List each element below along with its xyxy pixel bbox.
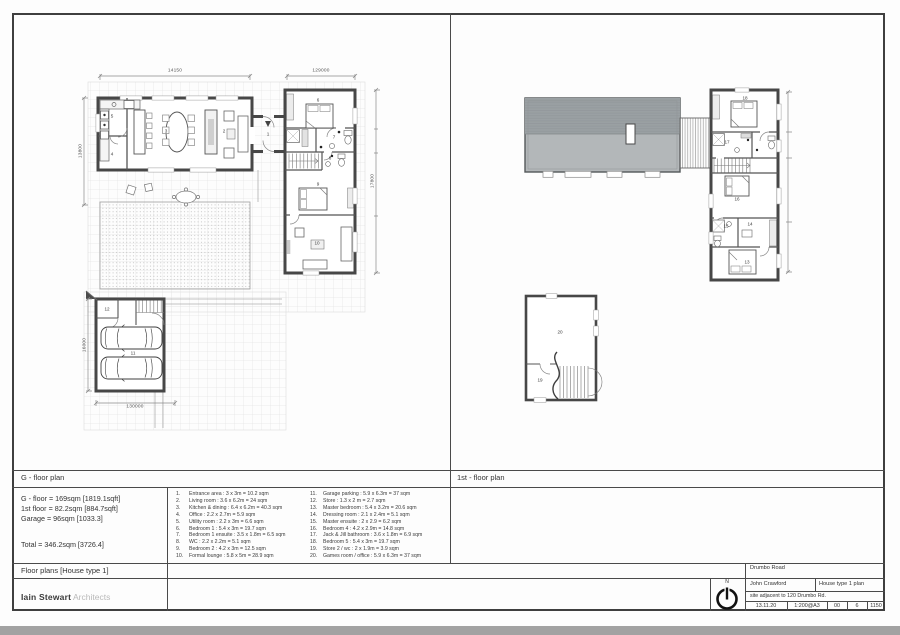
titleblock-date: 13.11.20 (745, 601, 787, 611)
divider-line (815, 578, 816, 591)
divider-line (745, 591, 885, 592)
project-title: Floor plans [House type 1] (21, 566, 109, 575)
architect-signature: Iain Stewart Architects (21, 592, 110, 602)
sheet-border (12, 13, 885, 611)
schedule-item: 4.Office : 2.2 x 2.7m = 5.9 sqm (176, 512, 304, 519)
divider-line (12, 578, 885, 579)
schedule-item: 8.WC : 2.2 x 2.2m = 5.1 sqm (176, 539, 304, 546)
schedule-item: 14.Dressing room : 2.1 x 2.4m = 5.1 sqm (310, 512, 444, 519)
titleblock-sheet-number: 6 (847, 601, 867, 611)
drawing-sheet: 123456789101112 1314151617181920 14150 1… (0, 0, 900, 635)
schedule-item: 16.Bedroom 4 : 4.2 x 2.9m = 14.8 sqm (310, 526, 444, 533)
divider-line (12, 470, 885, 471)
titleblock-ref: 1150 (867, 601, 885, 611)
room-schedule-col1: 1.Entrance area : 3 x 3m = 10.2 sqm2.Liv… (176, 491, 304, 560)
schedule-item: 19.Store 2 / wc : 2 x 1.9m = 3.9 sqm (310, 546, 444, 553)
schedule-item: 13.Master bedroom : 5.4 x 3.2m = 20.6 sq… (310, 505, 444, 512)
schedule-item: 20.Games room / office : 5.9 x 6.3m = 37… (310, 553, 444, 560)
schedule-item: 1.Entrance area : 3 x 3m = 10.2 sqm (176, 491, 304, 498)
titleblock-scale: 1:200@A3 (787, 601, 827, 611)
divider-line (450, 13, 451, 563)
first-floor-plan-header: 1st - floor plan (457, 473, 505, 482)
titleblock-drawing: House type 1 plan (819, 581, 864, 587)
schedule-item: 5.Utility room : 2.2 x 3m = 6.6 sqm (176, 519, 304, 526)
schedule-item: 7.Bedroom 1 ensuite : 3.5 x 1.8m = 6.5 s… (176, 532, 304, 539)
schedule-item: 9.Bedroom 2 : 4.2 x 3m = 12.5 sqm (176, 546, 304, 553)
screenshot-bottom-strip (0, 626, 900, 635)
titleblock-road: Drumbo Road (750, 565, 785, 571)
architect-suffix: Architects (73, 592, 110, 602)
summary-line: Garage = 96sqm [1033.3] (21, 514, 120, 524)
schedule-item: 17.Jack & Jill bathroom : 3.6 x 1.8m = 6… (310, 532, 444, 539)
area-summary: G - floor = 169sqm [1819.1sqft] 1st floo… (21, 494, 120, 550)
schedule-item: 15.Master ensuite : 2 x 2.9 = 6.2 sqm (310, 519, 444, 526)
titleblock-revision: 00 (827, 601, 847, 611)
schedule-item: 12.Store : 1.3 x 2 m = 2.7 sqm (310, 498, 444, 505)
room-schedule-col2: 11.Garage parking : 5.9 x 6.3m = 37 sqm1… (310, 491, 444, 560)
g-floor-plan-header: G - floor plan (21, 473, 64, 482)
schedule-item: 6.Bedroom 1 : 5.4 x 3m = 19.7 sqm (176, 526, 304, 533)
summary-line: G - floor = 169sqm [1819.1sqft] (21, 494, 120, 504)
schedule-item: 3.Kitchen & dining : 6.4 x 6.2m = 40.3 s… (176, 505, 304, 512)
north-arrow-icon (714, 585, 740, 611)
divider-line (12, 563, 885, 564)
schedule-item: 10.Formal lounge : 5.8 x 5m = 28.9 sqm (176, 553, 304, 560)
divider-line (12, 487, 885, 488)
architect-name: Iain Stewart (21, 592, 71, 602)
summary-line: 1st floor = 82.2sqm [884.7sqft] (21, 504, 120, 514)
divider-line (710, 578, 711, 611)
schedule-item: 11.Garage parking : 5.9 x 6.3m = 37 sqm (310, 491, 444, 498)
titleblock-client: John Crawford (750, 581, 786, 587)
divider-line (167, 487, 168, 611)
schedule-item: 18.Bedroom 5 : 5.4 x 3m = 19.7 sqm (310, 539, 444, 546)
schedule-item: 2.Living room : 3.6 x 6.2m = 24 sqm (176, 498, 304, 505)
summary-total: Total = 346.2sqm [3726.4] (21, 540, 120, 550)
titleblock-site: site adjacent to 120 Drumbo Rd. (750, 593, 826, 599)
